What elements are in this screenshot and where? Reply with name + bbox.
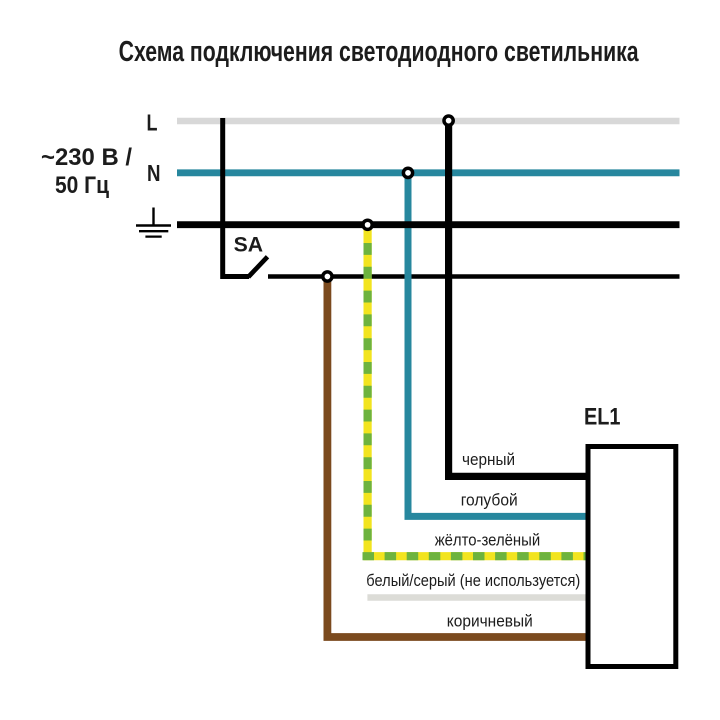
svg-text:L: L — [147, 110, 158, 136]
svg-text:коричневый: коричневый — [447, 612, 533, 631]
svg-text:жёлто-зелёный: жёлто-зелёный — [435, 531, 541, 550]
svg-text:Схема подключения светодиодног: Схема подключения светодиодного светильн… — [119, 36, 640, 68]
svg-text:EL1: EL1 — [584, 404, 621, 431]
svg-text:голубой: голубой — [461, 491, 518, 510]
svg-text:SA: SA — [234, 234, 264, 257]
svg-text:N: N — [147, 160, 161, 186]
svg-text:50 Гц: 50 Гц — [55, 172, 109, 199]
svg-text:белый/серый (не используется): белый/серый (не используется) — [366, 571, 580, 590]
svg-text:черный: черный — [462, 450, 515, 469]
svg-text:~230 В /: ~230 В / — [41, 144, 132, 171]
